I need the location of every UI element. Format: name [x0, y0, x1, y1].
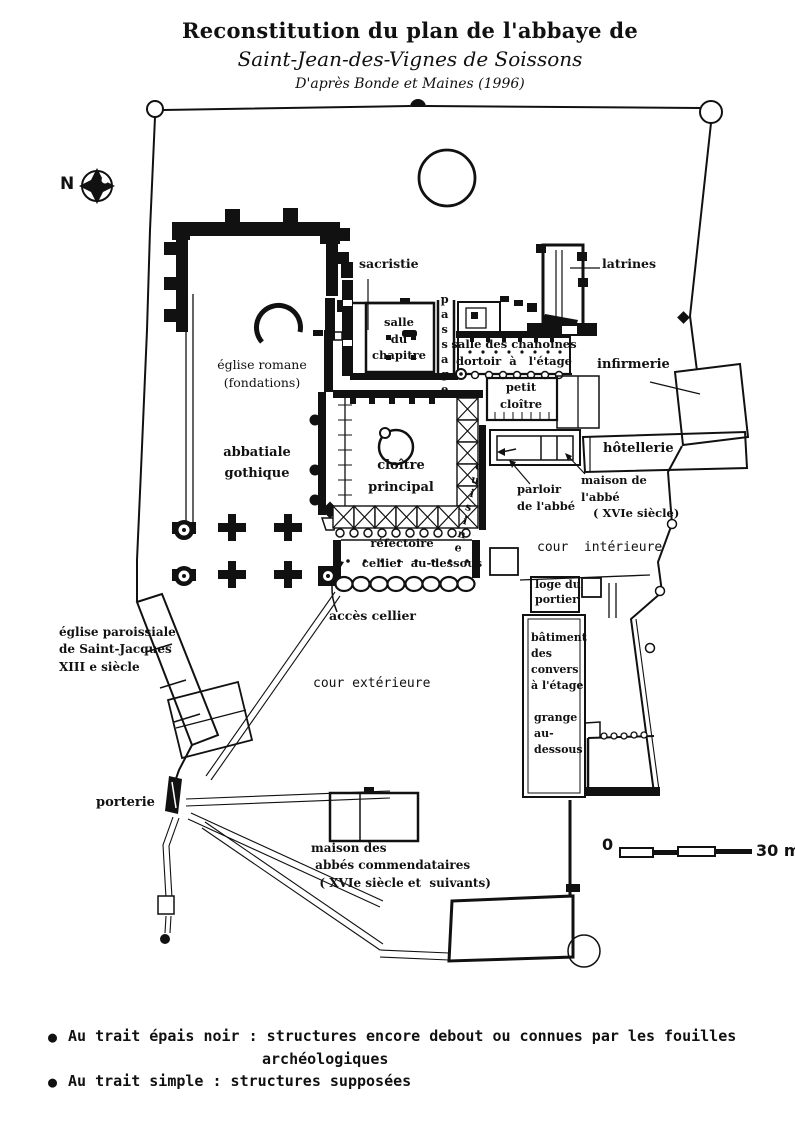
scale-start-label: 0 — [602, 833, 613, 856]
label-salle-du-chapitre: salle du chapitre — [372, 314, 426, 364]
wall-tower-icon — [646, 644, 655, 653]
label-acces-cellier: accès cellier — [329, 607, 416, 625]
label-batiment-convers: bâtiment des convers à l'étage — [531, 630, 587, 694]
label-sacristie: sacristie — [359, 255, 419, 273]
gatehouse — [165, 592, 390, 950]
legend-item-thick-line-cont: archéologiques — [262, 1050, 388, 1068]
label-salle-des-chanoines: salle des chanoines dortoir à l'étage — [451, 336, 576, 369]
corner-tower-icon — [147, 101, 163, 117]
corner-tower-icon — [700, 101, 722, 123]
label-abbatiale-gothique: abbatiale gothique — [223, 443, 291, 485]
scale-end-label: 30 m — [756, 839, 795, 862]
label-loge-portier: loge du portier — [535, 578, 581, 608]
legend-item-thin-line: Au trait simple : structures supposées — [68, 1072, 411, 1090]
label-porterie: porterie — [96, 794, 155, 813]
label-cour-interieure: cour intérieure — [537, 539, 662, 558]
legend-bullet-icon: ● — [48, 1073, 57, 1091]
label-cellier: cellier au-dessous — [362, 555, 482, 572]
label-eglise-paroissiale: église paroissiale de Saint-Jacques XIII… — [59, 624, 176, 676]
abbot-house — [490, 430, 580, 465]
label-parloir-abbe: parloir de l'abbé — [517, 481, 575, 514]
round-tower-icon — [419, 150, 475, 206]
wall-tower-icon — [656, 587, 665, 596]
legend-bullet-icon: ● — [48, 1028, 57, 1046]
label-cloitre-principal: cloître principal — [368, 455, 434, 499]
label-grange: grange au- dessous — [534, 710, 583, 758]
legend-item-thick-line: Au trait épais noir : structures encore … — [68, 1027, 736, 1045]
north-label: N — [60, 172, 74, 197]
label-infirmerie: infirmerie — [597, 356, 670, 375]
abbey-plan-page: Reconstitution du plan de l'abbaye de Sa… — [0, 0, 795, 1125]
label-refectoire: réfectoire — [370, 535, 433, 552]
north-compass-icon — [79, 168, 115, 204]
label-petit-cloitre: petit cloître — [500, 379, 542, 412]
label-maison-abbe: maison de l'abbé ( XVIe siècle) — [581, 472, 679, 522]
gothic-church-piers — [172, 502, 338, 588]
label-maison-abbes: maison des abbés commendataires ( XVIe s… — [311, 840, 491, 892]
label-hotellerie: hôtellerie — [603, 440, 674, 459]
scale-bar — [620, 847, 752, 857]
label-passage: passage — [436, 292, 453, 397]
label-cour-exterieure: cour extérieure — [313, 675, 430, 694]
label-eglise-romane: église romane (fondations) — [217, 356, 306, 392]
label-latrines: latrines — [602, 255, 656, 273]
